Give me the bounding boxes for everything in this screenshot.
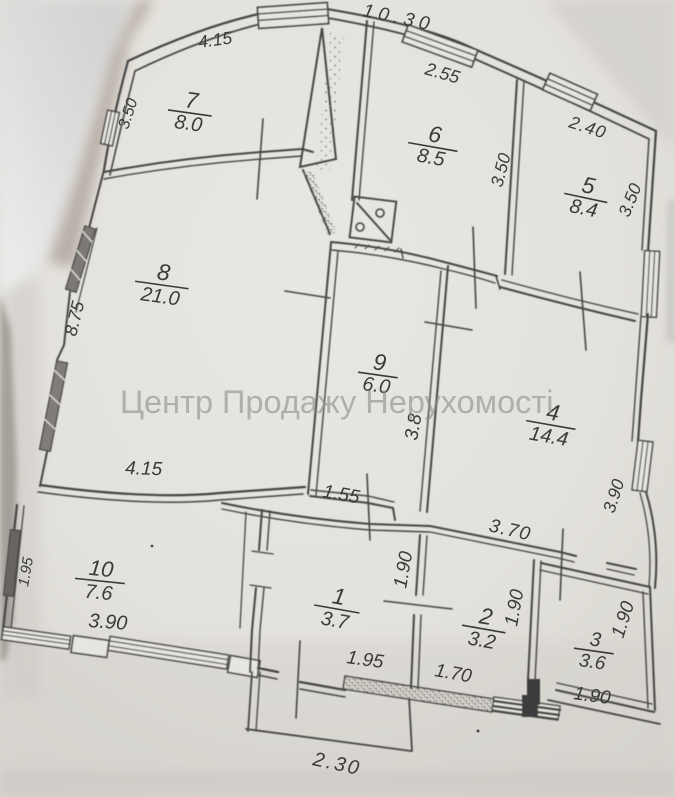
svg-text:Центр Продажу Нерухомості: Центр Продажу Нерухомості	[120, 384, 554, 420]
svg-text:7.6: 7.6	[84, 581, 115, 606]
svg-text:10: 10	[88, 555, 116, 583]
svg-text:8.0: 8.0	[173, 111, 204, 137]
svg-text:3.6: 3.6	[578, 650, 608, 675]
svg-text:4.15: 4.15	[125, 458, 163, 480]
svg-text:3.90: 3.90	[88, 610, 128, 635]
